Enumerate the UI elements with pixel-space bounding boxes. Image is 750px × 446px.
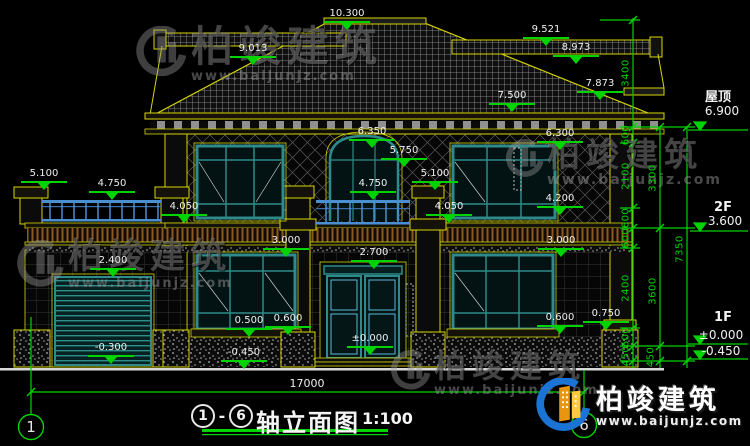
chain-dim: 2400 xyxy=(621,274,632,301)
chain-dim: 600 xyxy=(621,228,632,249)
elevation-mark: 4.200 xyxy=(537,193,583,215)
chain-dim: 450 xyxy=(646,347,657,368)
elevation-mark: 7.500 xyxy=(489,90,535,112)
brand-logo: 柏竣建筑 www.baijunjz.com xyxy=(536,378,743,438)
elevation-mark: 4.750 xyxy=(89,178,135,200)
elevation-mark: 2.700 xyxy=(351,247,397,269)
elevation-mark: 3.000 xyxy=(263,235,309,257)
brand-logo-text: 柏竣建筑 xyxy=(596,387,743,414)
title-dash: - xyxy=(219,407,226,426)
elevation-mark: 10.300 xyxy=(324,8,370,30)
level-value-1f-zero: ±0.000 xyxy=(699,328,743,342)
elevation-mark: 4.050 xyxy=(161,201,207,223)
axis-bubble-1: 1 xyxy=(26,418,36,436)
drawing-title: 轴立面图 xyxy=(256,403,360,438)
title-axis-start: 1 xyxy=(191,404,215,428)
chain-dim: 600 xyxy=(621,327,632,348)
elevation-mark: 5.100 xyxy=(412,168,458,190)
stone-strip-right xyxy=(446,337,606,367)
chain-dim: 7350 xyxy=(675,235,686,262)
elevation-mark: 8.973 xyxy=(553,42,599,64)
level-value-2f: 3.600 xyxy=(708,214,742,228)
chain-dim: 450 xyxy=(621,346,632,367)
level-label-2f: 2F xyxy=(714,200,732,215)
elevation-mark: 5.100 xyxy=(21,168,67,190)
window-2f-left xyxy=(194,143,286,221)
ground-line xyxy=(0,368,664,371)
chain-dim: 3300 xyxy=(648,164,659,191)
elevation-mark: 4.750 xyxy=(350,178,396,200)
total-width-dim: 17000 xyxy=(290,377,325,390)
elevation-mark: 9.013 xyxy=(230,43,276,65)
brand-logo-icon xyxy=(536,378,594,438)
elevation-mark: -0.450 xyxy=(221,347,267,369)
elevation-mark: 5.750 xyxy=(381,145,427,167)
elevation-mark: -0.300 xyxy=(88,342,134,364)
level-label-1f: 1F xyxy=(714,310,732,325)
elevation-mark: 2.400 xyxy=(90,255,136,277)
chain-dim: 600 xyxy=(621,125,632,146)
title-axis-end: 6 xyxy=(229,404,253,428)
elevation-mark: 4.050 xyxy=(426,201,472,223)
level-value-1f-ground: -0.450 xyxy=(702,344,741,358)
chain-dim: 3400 xyxy=(621,59,632,86)
roof xyxy=(145,18,664,134)
cad-canvas: 柏竣建筑 www.baijunjz.com 柏竣建筑 www.baijunjz.… xyxy=(0,0,750,446)
chain-dim: 2100 xyxy=(621,162,632,189)
elevation-mark: 0.600 xyxy=(265,313,311,335)
elevation-mark: 6.300 xyxy=(537,128,583,150)
chain-dim: 600 xyxy=(621,208,632,229)
elevation-mark: 7.873 xyxy=(577,78,623,100)
level-label-roof: 屋顶 xyxy=(705,86,731,105)
drawing-scale: 1:100 xyxy=(362,409,413,428)
elevation-mark: 0.600 xyxy=(537,312,583,334)
elevation-mark: ±0.000 xyxy=(347,333,393,355)
balcony-railing xyxy=(316,200,410,225)
chain-dim: 3600 xyxy=(648,277,659,304)
brand-logo-url: www.baijunjz.com xyxy=(596,414,743,430)
elevation-mark: 3.000 xyxy=(538,235,584,257)
level-value-roof: 6.900 xyxy=(705,104,739,118)
